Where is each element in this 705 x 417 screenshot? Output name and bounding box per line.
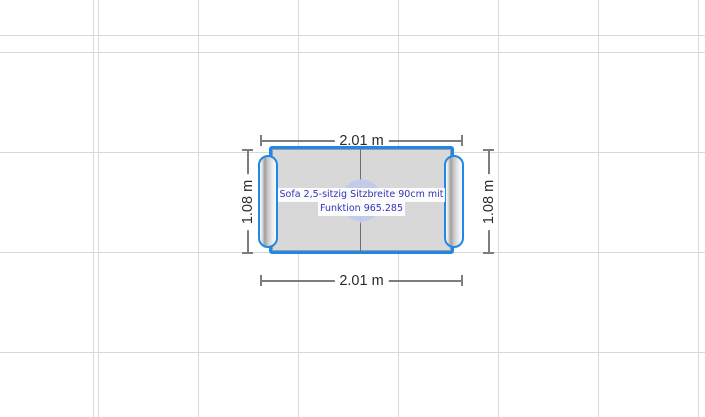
rotate-icon[interactable] (339, 178, 384, 223)
floor-plan-canvas[interactable]: 2.01 m 2.01 m 1.08 m 1.08 m Sofa (0, 0, 705, 417)
sofa-armrest-left (258, 155, 278, 248)
sofa-object[interactable]: Sofa 2,5-sitzig Sitzbreite 90cm mit Funk… (0, 0, 705, 417)
sofa-armrest-right (444, 155, 464, 248)
